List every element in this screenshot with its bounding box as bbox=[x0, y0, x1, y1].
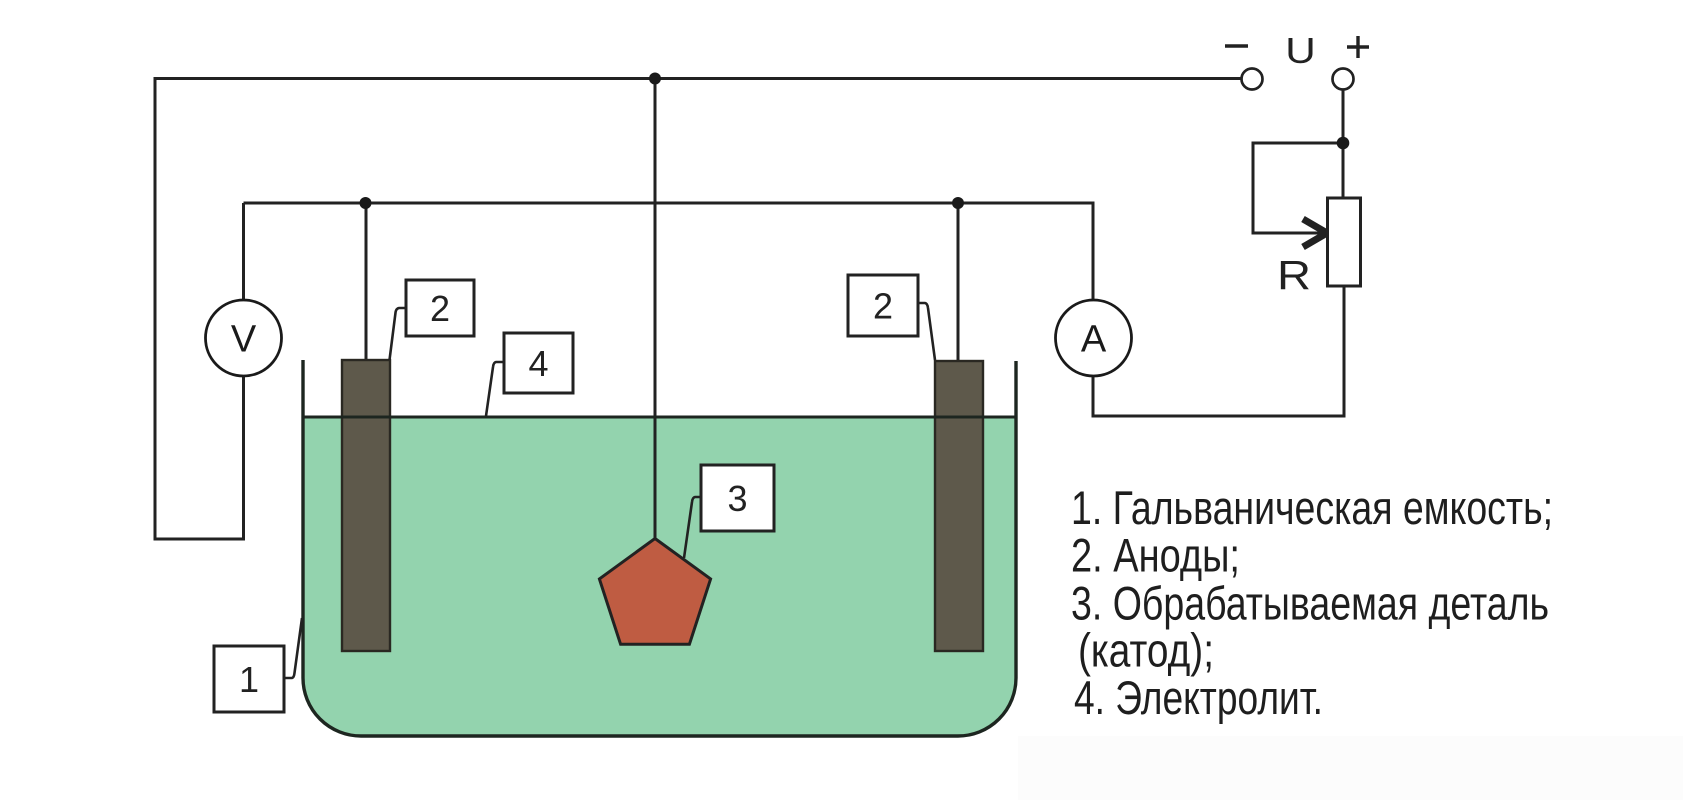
svg-text:1. Гальваническая емкость;: 1. Гальваническая емкость; bbox=[1071, 481, 1553, 534]
svg-text:2. Аноды;: 2. Аноды; bbox=[1071, 529, 1240, 582]
svg-text:4. Электролит.: 4. Электролит. bbox=[1074, 671, 1323, 724]
svg-text:2: 2 bbox=[873, 286, 893, 327]
svg-text:4: 4 bbox=[528, 343, 548, 384]
svg-text:R: R bbox=[1277, 252, 1311, 298]
svg-text:U: U bbox=[1285, 30, 1316, 71]
svg-text:2: 2 bbox=[430, 288, 450, 329]
svg-text:3. Обрабатываемая деталь: 3. Обрабатываемая деталь bbox=[1071, 577, 1549, 630]
svg-text:(катод);: (катод); bbox=[1078, 624, 1214, 677]
svg-text:3: 3 bbox=[727, 478, 747, 519]
svg-text:1: 1 bbox=[239, 659, 259, 700]
svg-text:A: A bbox=[1081, 319, 1107, 361]
svg-text:V: V bbox=[231, 319, 257, 361]
